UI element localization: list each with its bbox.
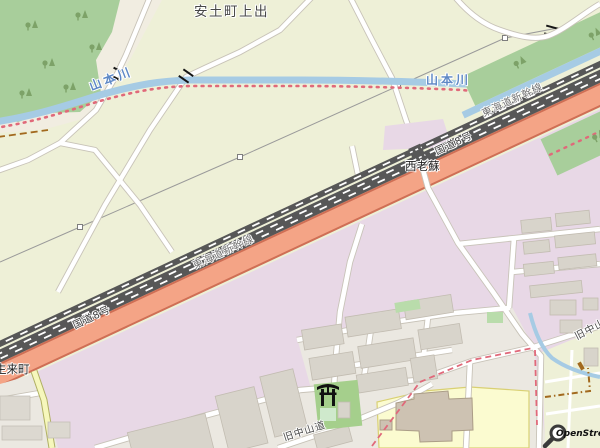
building bbox=[2, 426, 42, 440]
pylon-icon bbox=[503, 36, 508, 41]
building bbox=[523, 240, 550, 255]
map-canvas[interactable]: 安土町上出 山本川 山本川 東海道新幹線 東海道新幹線 国道8号 国道8号 西老… bbox=[0, 0, 600, 448]
place-label-nishi-oiso: 西老蘇 bbox=[405, 161, 440, 173]
place-label-shorai-cho: 生来町 bbox=[0, 364, 30, 376]
building bbox=[48, 422, 70, 438]
pylon-icon bbox=[238, 155, 243, 160]
river-label-yamamoto-east: 山本川 bbox=[426, 74, 471, 86]
place-label-azuchicho-kamide: 安土町上出 bbox=[194, 6, 269, 20]
osm-attribution: OpenStreetMap bbox=[556, 429, 600, 439]
building bbox=[410, 355, 437, 382]
building bbox=[583, 298, 598, 310]
building bbox=[550, 300, 576, 315]
building bbox=[338, 402, 350, 418]
building bbox=[584, 348, 598, 366]
green-patch bbox=[487, 312, 503, 323]
map-render bbox=[0, 0, 600, 448]
building bbox=[0, 396, 30, 420]
pylon-icon bbox=[78, 225, 83, 230]
building bbox=[523, 261, 554, 276]
building bbox=[521, 217, 552, 233]
